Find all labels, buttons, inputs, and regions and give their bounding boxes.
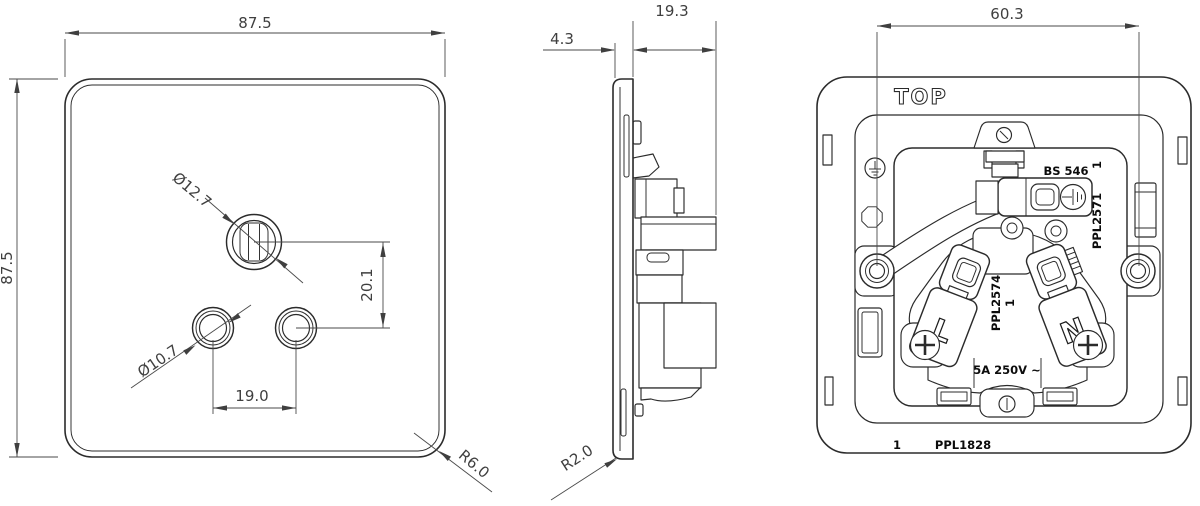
side-faceplate [613,79,633,459]
dim-pin-vertical: 20.1 [358,268,376,301]
standard-label: BS 546 [1043,164,1088,178]
part-number-insert-issue: 1 [1090,161,1104,169]
side-view: 4.3 19.3 R2.0 [543,2,716,500]
rear-view: L N [817,5,1191,453]
dim-front-height: 87.5 [0,251,16,284]
side-mechanism [633,121,716,416]
earth-symbol [865,158,885,178]
mounting-boss-right [1121,254,1155,288]
dim-front-width: 87.5 [238,14,271,32]
fixing-screw-right [1074,331,1103,360]
dim-pin-spacing: 19.0 [235,387,268,405]
part-number-carrier-issue: 1 [1003,299,1017,307]
footer-issue: 1 [893,438,901,452]
dim-edge-radius: R2.0 [558,441,597,475]
dim-fixing-centres: 60.3 [990,5,1023,23]
dim-plate-thickness: 4.3 [550,30,574,48]
dim-corner-radius: R6.0 [455,446,493,482]
front-view: 87.5 87.5 Ø12.7 Ø10.7 20.1 [0,14,493,492]
part-number-carrier: PPL2574 [989,275,1003,331]
dim-mechanism-depth: 19.3 [655,2,688,20]
technical-drawing: 87.5 87.5 Ø12.7 Ø10.7 20.1 [0,0,1200,506]
rating-label: 5A 250V ~ [973,363,1040,377]
fixing-screw-left [911,331,940,360]
part-number-insert: PPL2571 [1090,193,1104,249]
footer-part-number: PPL1828 [935,438,991,452]
orientation-label: TOP [894,85,948,109]
